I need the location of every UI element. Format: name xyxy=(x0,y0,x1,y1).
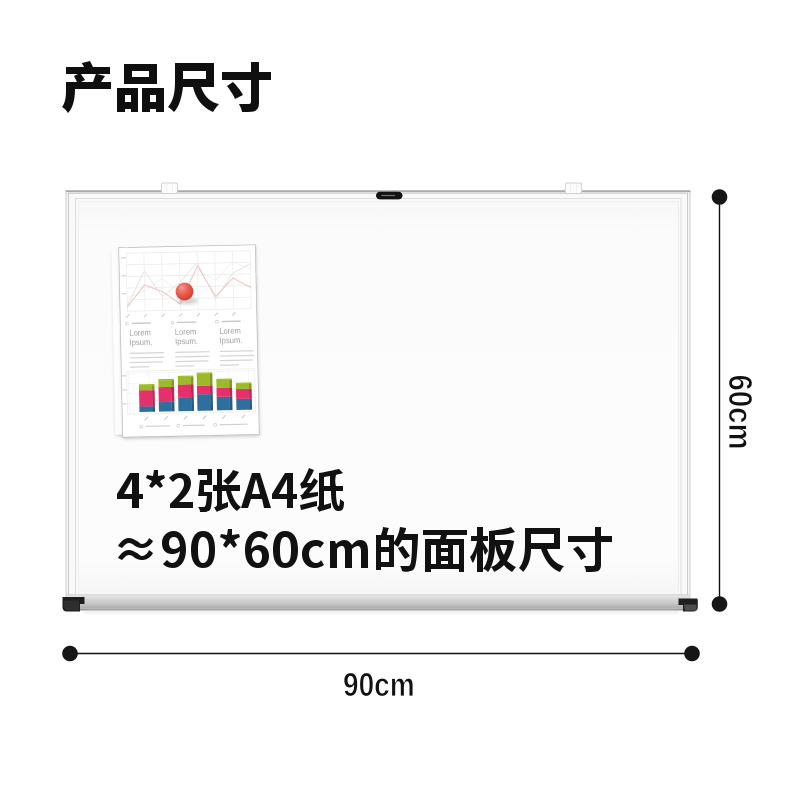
svg-text:90cm: 90cm xyxy=(343,667,415,704)
svg-text:Ipsum.: Ipsum. xyxy=(129,337,152,347)
svg-text:60cm: 60cm xyxy=(722,375,759,450)
svg-text:Ipsum.: Ipsum. xyxy=(219,335,242,345)
svg-text:Ipsum.: Ipsum. xyxy=(175,336,198,346)
